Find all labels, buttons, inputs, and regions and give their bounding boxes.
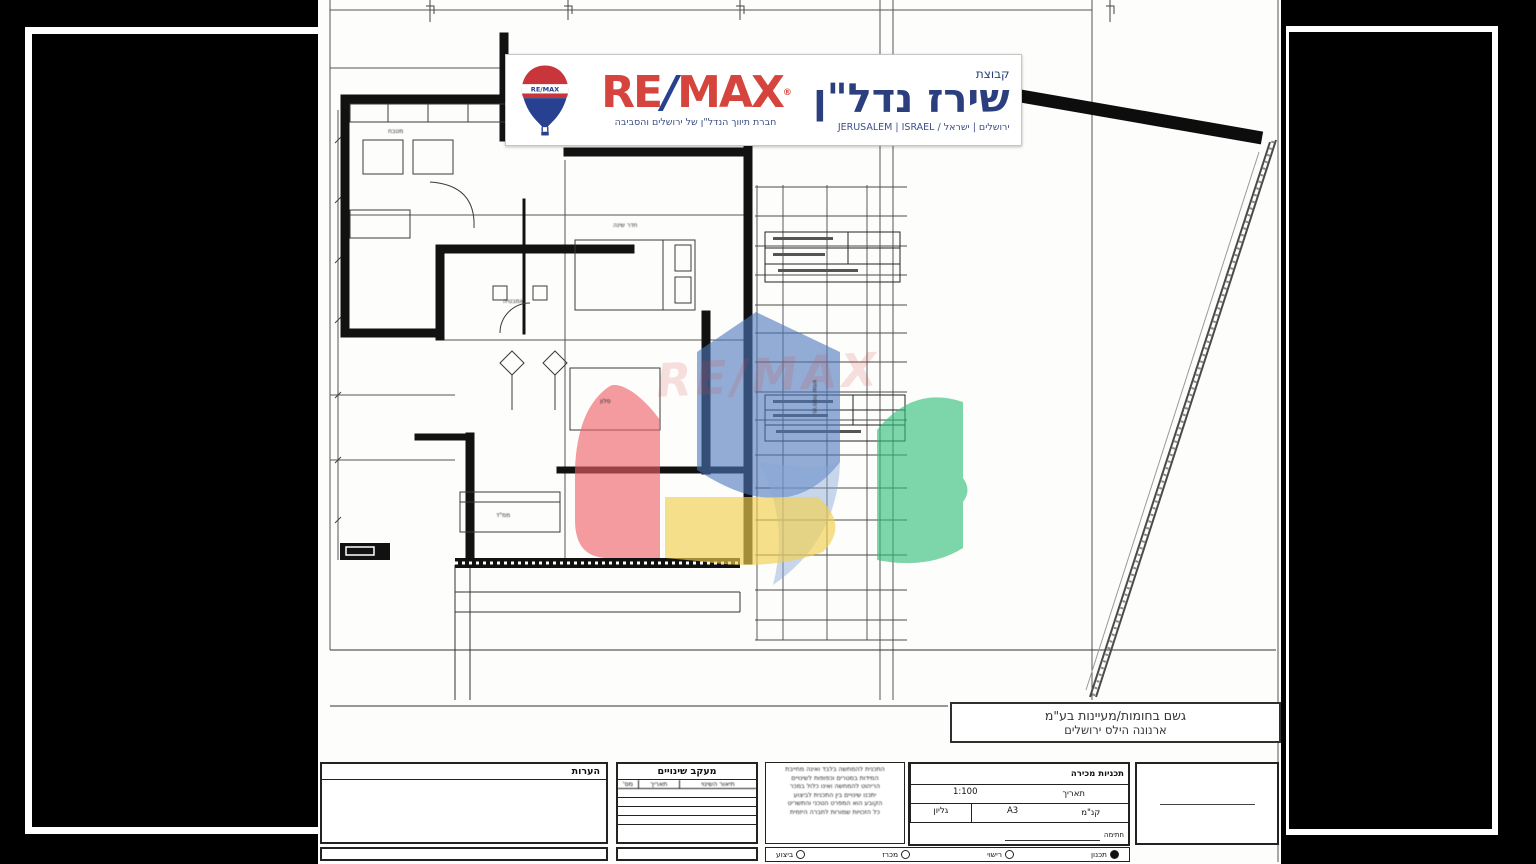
right-mat-border	[1286, 26, 1498, 835]
banner-tagline-english: JERUSALEM | ISRAEL / ירושלים | ישראל	[813, 122, 1010, 133]
changes-empty-row	[618, 789, 756, 798]
disclaimer-line: הקובע הוא המפרט הטכני והתשריט	[768, 800, 902, 809]
disclaimer-line: המידות במטרים וכפופות לשינויים	[768, 775, 902, 784]
signature-box	[1135, 762, 1279, 845]
agency-name: שירז נדל"ן	[813, 79, 1010, 119]
status-option-permit: רישוי	[987, 850, 1014, 859]
agency-block: קבוצת שירז נדל"ן JERUSALEM | ISRAEL / יר…	[813, 67, 1014, 133]
status-label: רישוי	[987, 850, 1002, 859]
radio-empty-icon	[1005, 850, 1014, 859]
signature-label: חתימה	[1100, 829, 1128, 841]
radio-empty-icon	[796, 850, 805, 859]
room-label-terrace: מרפסת שמש	[811, 380, 818, 414]
status-label: מכרז	[882, 850, 898, 859]
floorplan-sheet: RE/MAX מטבח אמבטיה חדר שינה סלון ממ"ד מר…	[318, 0, 1281, 864]
room-label-living: סלון	[600, 398, 611, 405]
status-option-execution: ביצוע	[776, 850, 805, 859]
scale-value: 1:100	[910, 785, 1020, 803]
changes-box: מעקב שינויים תיאור השינוי תאריך מס'	[616, 762, 758, 844]
changes-empty-row	[618, 807, 756, 816]
left-mat-border	[25, 27, 325, 834]
room-label-bath: אמבטיה	[503, 298, 524, 305]
scanned-floorplan-photo: RE/MAX מטבח אמבטיה חדר שינה סלון ממ"ד מר…	[0, 0, 1536, 864]
disclaimer-line: כל הזכויות שמורות לחברה היזמית	[768, 809, 902, 818]
status-label: ביצוע	[776, 850, 793, 859]
status-option-planning: תכנון	[1091, 850, 1119, 859]
disclaimer-line: הריהוט להמחשה ואינו כלול במכר	[768, 783, 902, 792]
room-label-bedroom: חדר שינה	[613, 222, 637, 229]
disclaimer-line: יתכנו שינויים בין התכנית לביצוע	[768, 792, 902, 801]
drawing-set-title: תכניות מכירה	[948, 767, 1128, 781]
changes-column-row: תיאור השינוי תאריך מס'	[618, 780, 756, 789]
project-name: ארנונה הילס ירושלים	[952, 723, 1279, 737]
scale-label: קנ"מ	[1054, 806, 1128, 820]
right-black-mat	[1281, 0, 1536, 864]
developer-box: גשם בחומות/מעיינות בע"מ ארנונה הילס ירוש…	[950, 702, 1281, 743]
changes-header: מעקב שינויים	[618, 764, 756, 780]
changes-col-number: מס'	[618, 780, 638, 788]
notes-header: הערות	[322, 764, 606, 780]
remax-wordmark: RE/MAX®	[578, 73, 813, 113]
svg-text:RE/MAX: RE/MAX	[531, 86, 559, 94]
left-black-mat	[0, 0, 318, 864]
status-option-tender: מכרז	[882, 850, 910, 859]
disclaimer-line: התכנית להמחשה בלבד ואינה מחייבת	[768, 766, 902, 775]
changes-col-date: תאריך	[638, 780, 679, 788]
notes-box: הערות	[320, 762, 608, 844]
changes-empty-row	[618, 816, 756, 825]
room-label-kitchen: מטבח	[388, 128, 403, 135]
disclaimer-box: התכנית להמחשה בלבד ואינה מחייבת המידות ב…	[765, 762, 905, 844]
drawing-status-row: תכנון רישוי מכרז ביצוע	[765, 847, 1130, 862]
radio-empty-icon	[901, 850, 910, 859]
status-label: תכנון	[1091, 850, 1107, 859]
date-label: תאריך	[1020, 787, 1129, 801]
remax-banner: RE/MAX RE/MAX® חברת תיווך הנדל"ן של ירוש…	[505, 54, 1022, 146]
radio-filled-icon	[1110, 850, 1119, 859]
signature-box-line	[1160, 804, 1255, 805]
room-label-mamad: ממ"ד	[496, 512, 510, 519]
titleblock-blank-cell	[910, 764, 948, 784]
titleblock-table: תכניות מכירה תאריך 1:100 קנ"מ A3 גליון ח…	[908, 762, 1130, 846]
sheet-label: גליון	[910, 804, 971, 822]
remax-brand-block: RE/MAX® חברת תיווך הנדל"ן של ירושלים והס…	[578, 73, 813, 128]
changes-footer-box	[616, 847, 758, 861]
sheet-size: A3	[971, 804, 1054, 822]
changes-empty-row	[618, 798, 756, 807]
changes-empty-row	[618, 825, 756, 833]
banner-tagline-hebrew: חברת תיווך הנדל"ן של ירושלים והסביבה	[578, 117, 813, 128]
notes-footer-box	[320, 847, 608, 861]
developer-name: גשם בחומות/מעיינות בע"מ	[952, 708, 1279, 723]
signature-line	[1005, 840, 1100, 841]
remax-balloon-icon: RE/MAX	[514, 60, 576, 140]
changes-col-description: תיאור השינוי	[679, 780, 756, 788]
